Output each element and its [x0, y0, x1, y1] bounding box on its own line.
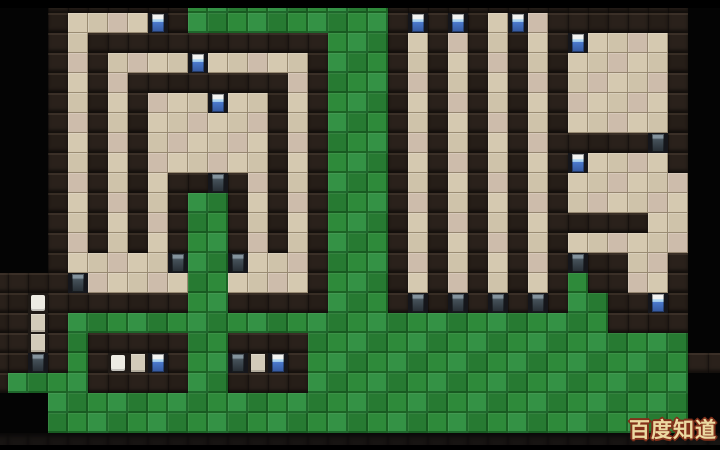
void-tile [688, 73, 708, 93]
grass-tile [48, 393, 68, 413]
wall-tile [468, 133, 488, 153]
grass-tile [348, 133, 368, 153]
wall-tile [48, 333, 68, 353]
void-tile [708, 193, 720, 213]
grass-tile [368, 173, 388, 193]
grass-tile [348, 13, 368, 33]
wall-tile [548, 73, 568, 93]
grass-tile [388, 313, 408, 333]
grass-tile [488, 313, 508, 333]
floor-tile [628, 233, 648, 253]
wall-tile [548, 33, 568, 53]
wall-tile [308, 93, 328, 113]
wall-tile [428, 113, 448, 133]
floor-tile [488, 253, 508, 273]
floor-tile [108, 133, 128, 153]
floor-tile [448, 213, 468, 233]
wall-tile [428, 73, 448, 93]
floor-tile [148, 253, 168, 273]
void-tile [688, 393, 708, 413]
void-tile [708, 13, 720, 33]
wall-tile [128, 233, 148, 253]
grass-tile [548, 333, 568, 353]
floor-tile [588, 53, 608, 73]
wall-tile [88, 293, 108, 313]
floor-tile [168, 153, 188, 173]
wall-tile [268, 193, 288, 213]
wall-tile [508, 253, 528, 273]
floor-tile [148, 193, 168, 213]
wall-tile [508, 273, 528, 293]
watermark-text: 百度知道 [629, 414, 717, 444]
wall-tile [268, 373, 288, 393]
void-tile [28, 393, 48, 413]
wall-tile [288, 353, 308, 373]
grass-tile [248, 393, 268, 413]
void-tile [708, 133, 720, 153]
wall-tile [48, 293, 68, 313]
grass-tile [108, 313, 128, 333]
wall-tile [388, 33, 408, 53]
floor-tile [228, 133, 248, 153]
floor-tile [448, 233, 468, 253]
wall-tile [88, 33, 108, 53]
dark-door-tile [168, 253, 188, 273]
grass-tile [408, 373, 428, 393]
blue-door-tile [568, 153, 588, 173]
floor-tile [68, 73, 88, 93]
void-tile [708, 73, 720, 93]
void-tile [688, 253, 708, 273]
wall-tile [428, 93, 448, 113]
grass-tile [368, 193, 388, 213]
wall-tile [88, 153, 108, 173]
floor-tile [488, 113, 508, 133]
wall-tile [88, 193, 108, 213]
wall-tile [568, 133, 588, 153]
wall-tile [108, 373, 128, 393]
floor-tile [588, 93, 608, 113]
void-tile [688, 293, 708, 313]
grass-tile [368, 273, 388, 293]
wall-tile [128, 153, 148, 173]
floor-tile [228, 113, 248, 133]
void-tile [688, 13, 708, 33]
floor-tile [408, 113, 428, 133]
grass-tile [408, 353, 428, 373]
wall-tile [308, 53, 328, 73]
void-tile [0, 33, 8, 53]
grass-tile [268, 313, 288, 333]
wall-tile [388, 93, 408, 113]
grass-tile [188, 333, 208, 353]
floor-tile [288, 273, 308, 293]
void-tile [8, 233, 28, 253]
dark-door-tile [528, 293, 548, 313]
wall-tile [548, 173, 568, 193]
floor-tile [668, 233, 688, 253]
grass-tile [368, 213, 388, 233]
wall-tile [88, 173, 108, 193]
wall-tile [628, 293, 648, 313]
floor-tile [488, 173, 508, 193]
void-tile [0, 73, 8, 93]
void-tile [708, 53, 720, 73]
floor-tile [108, 13, 128, 33]
wall-tile [508, 293, 528, 313]
void-tile [708, 113, 720, 133]
wall-tile [288, 373, 308, 393]
wall-tile [48, 173, 68, 193]
grass-tile [348, 173, 368, 193]
wall-tile [268, 93, 288, 113]
grass-tile [668, 373, 688, 393]
wall-tile [308, 113, 328, 133]
floor-tile [408, 33, 428, 53]
floor-tile [448, 73, 468, 93]
void-tile [0, 113, 8, 133]
void-tile [708, 333, 720, 353]
grass-tile [188, 233, 208, 253]
void-tile [28, 193, 48, 213]
floor-tile [108, 273, 128, 293]
wall-tile [228, 293, 248, 313]
grass-tile [348, 153, 368, 173]
floor-tile [648, 93, 668, 113]
dark-door-tile [228, 253, 248, 273]
grass-tile [68, 333, 88, 353]
floor-tile [188, 93, 208, 113]
grass-tile [288, 13, 308, 33]
floor-tile [68, 173, 88, 193]
wall-tile [88, 353, 108, 373]
grass-tile [448, 393, 468, 413]
floor-tile [628, 73, 648, 93]
grass-tile [328, 193, 348, 213]
wall-tile [428, 33, 448, 53]
void-tile [8, 73, 28, 93]
floor-tile [288, 213, 308, 233]
grass-tile [448, 333, 468, 353]
wall-tile [268, 233, 288, 253]
floor-tile [128, 13, 148, 33]
grass-tile [648, 353, 668, 373]
grass-tile [328, 93, 348, 113]
wall-tile [248, 293, 268, 313]
wall-tile [608, 133, 628, 153]
wall-tile [268, 333, 288, 353]
wall-tile [308, 273, 328, 293]
wall-tile [28, 273, 48, 293]
grass-tile [348, 333, 368, 353]
floor-tile [588, 153, 608, 173]
wall-tile [428, 153, 448, 173]
wall-tile [308, 133, 328, 153]
wall-tile [308, 73, 328, 93]
wall-tile [0, 333, 8, 353]
wall-tile [388, 213, 408, 233]
blue-door-tile [508, 13, 528, 33]
floor-tile [628, 93, 648, 113]
floor-tile [88, 13, 108, 33]
wall-tile [428, 293, 448, 313]
wall-tile [508, 73, 528, 93]
floor-tile [208, 133, 228, 153]
void-tile [28, 133, 48, 153]
floor-tile [108, 253, 128, 273]
grass-tile [328, 293, 348, 313]
grass-tile [588, 293, 608, 313]
floor-tile [588, 193, 608, 213]
wall-tile [308, 253, 328, 273]
wall-tile [508, 53, 528, 73]
wall-tile [8, 353, 28, 373]
grass-tile [368, 293, 388, 313]
grass-tile [568, 413, 588, 433]
wall-tile [148, 333, 168, 353]
grass-tile [188, 273, 208, 293]
wall-tile [88, 133, 108, 153]
blue-door-tile [448, 13, 468, 33]
floor-tile [148, 133, 168, 153]
floor-tile [608, 73, 628, 93]
floor-tile [608, 93, 628, 113]
grass-tile [388, 393, 408, 413]
void-tile [0, 253, 8, 273]
grass-tile [408, 333, 428, 353]
wall-tile [308, 233, 328, 253]
void-tile [688, 153, 708, 173]
void-tile [28, 93, 48, 113]
floor-tile [108, 233, 128, 253]
blue-door-tile [568, 33, 588, 53]
wall-tile [668, 93, 688, 113]
void-tile [0, 193, 8, 213]
floor-tile [488, 273, 508, 293]
floor-tile [248, 153, 268, 173]
wall-tile [228, 33, 248, 53]
floor-tile [408, 253, 428, 273]
floor-tile [528, 233, 548, 253]
grass-tile [328, 413, 348, 433]
floor-tile [648, 173, 668, 193]
floor-tile [68, 193, 88, 213]
grass-tile [328, 253, 348, 273]
dark-door-tile [568, 253, 588, 273]
grass-tile [168, 313, 188, 333]
floor-tile [568, 113, 588, 133]
bed-body-tile [28, 313, 48, 333]
grass-tile [288, 393, 308, 413]
wall-tile [388, 173, 408, 193]
void-tile [8, 93, 28, 113]
wall-tile [468, 213, 488, 233]
bed-pillow-tile [28, 293, 48, 313]
floor-tile [228, 93, 248, 113]
wall-tile [268, 173, 288, 193]
void-tile [708, 233, 720, 253]
wall-tile [608, 253, 628, 273]
void-tile [28, 33, 48, 53]
wall-tile [128, 93, 148, 113]
floor-tile [108, 53, 128, 73]
wall-tile [228, 193, 248, 213]
wall-tile [48, 273, 68, 293]
grass-tile [308, 13, 328, 33]
wall-tile [608, 313, 628, 333]
floor-tile [528, 173, 548, 193]
void-tile [8, 53, 28, 73]
blue-door-tile [208, 93, 228, 113]
floor-tile [148, 233, 168, 253]
grass-tile [508, 353, 528, 373]
grass-tile [468, 333, 488, 353]
floor-tile [408, 133, 428, 153]
floor-tile [248, 53, 268, 73]
grass-tile [568, 373, 588, 393]
floor-tile [148, 213, 168, 233]
wall-tile [668, 133, 688, 153]
wall-tile [228, 73, 248, 93]
wall-tile [48, 153, 68, 173]
void-tile [708, 313, 720, 333]
floor-tile [488, 73, 508, 93]
grass-tile [348, 53, 368, 73]
blue-door-tile [648, 293, 668, 313]
wall-tile [628, 133, 648, 153]
floor-tile [608, 173, 628, 193]
wall-tile [468, 33, 488, 53]
wall-tile [668, 153, 688, 173]
wall-tile [468, 193, 488, 213]
wall-tile [668, 313, 688, 333]
void-tile [688, 313, 708, 333]
floor-tile [148, 53, 168, 73]
wall-tile [188, 173, 208, 193]
grass-tile [448, 373, 468, 393]
wall-tile [468, 93, 488, 113]
grass-tile [368, 253, 388, 273]
void-tile [688, 93, 708, 113]
wall-tile [308, 33, 328, 53]
floor-tile [528, 93, 548, 113]
grass-tile [588, 373, 608, 393]
wall-tile [108, 333, 128, 353]
grass-tile [468, 313, 488, 333]
floor-tile [588, 33, 608, 53]
void-tile [688, 273, 708, 293]
void-tile [8, 13, 28, 33]
grass-tile [608, 413, 628, 433]
wall-tile [648, 313, 668, 333]
wall-tile [508, 213, 528, 233]
grass-tile [208, 253, 228, 273]
wall-tile [8, 313, 28, 333]
wall-tile [268, 73, 288, 93]
wall-tile [48, 353, 68, 373]
floor-tile [408, 93, 428, 113]
floor-tile [108, 73, 128, 93]
grass-tile [328, 213, 348, 233]
grass-tile [348, 73, 368, 93]
floor-tile [288, 113, 308, 133]
wall-tile [0, 373, 8, 393]
grass-tile [448, 353, 468, 373]
floor-tile [648, 33, 668, 53]
floor-tile [448, 53, 468, 73]
wall-tile [388, 113, 408, 133]
floor-tile [488, 233, 508, 253]
floor-tile [68, 93, 88, 113]
wall-tile [308, 153, 328, 173]
grass-tile [328, 353, 348, 373]
floor-tile [288, 73, 308, 93]
grass-tile [288, 413, 308, 433]
floor-tile [448, 253, 468, 273]
wall-tile [428, 193, 448, 213]
grass-tile [668, 333, 688, 353]
wall-tile [388, 53, 408, 73]
grass-tile [468, 413, 488, 433]
grass-tile [128, 313, 148, 333]
wall-tile [148, 33, 168, 53]
wall-tile [608, 293, 628, 313]
grass-tile [508, 313, 528, 333]
grass-tile [668, 353, 688, 373]
wall-tile [68, 293, 88, 313]
floor-tile [288, 173, 308, 193]
floor-tile [168, 53, 188, 73]
grass-tile [368, 133, 388, 153]
floor-tile [228, 53, 248, 73]
floor-tile [248, 93, 268, 113]
floor-tile [448, 33, 468, 53]
bed-body-tile [248, 353, 268, 373]
grass-tile [188, 353, 208, 373]
grass-tile [528, 393, 548, 413]
grass-tile [528, 313, 548, 333]
floor-tile [68, 113, 88, 133]
grass-tile [208, 213, 228, 233]
grass-tile [668, 393, 688, 413]
wall-tile [308, 213, 328, 233]
grass-tile [608, 393, 628, 413]
wall-tile [48, 253, 68, 273]
grass-tile [348, 253, 368, 273]
grass-tile [328, 73, 348, 93]
wall-tile [248, 333, 268, 353]
wall-tile [508, 193, 528, 213]
grass-tile [48, 413, 68, 433]
wall-tile [268, 113, 288, 133]
grass-tile [308, 413, 328, 433]
grass-tile [608, 373, 628, 393]
grass-tile [168, 393, 188, 413]
grass-tile [88, 313, 108, 333]
wall-tile [548, 213, 568, 233]
grass-tile [208, 293, 228, 313]
grass-tile [288, 313, 308, 333]
floor-tile [668, 213, 688, 233]
grass-tile [328, 173, 348, 193]
grass-tile [48, 373, 68, 393]
void-tile [0, 93, 8, 113]
wall-tile [168, 173, 188, 193]
wall-tile [168, 193, 188, 213]
floor-tile [408, 273, 428, 293]
wall-tile [648, 13, 668, 33]
floor-tile [268, 253, 288, 273]
